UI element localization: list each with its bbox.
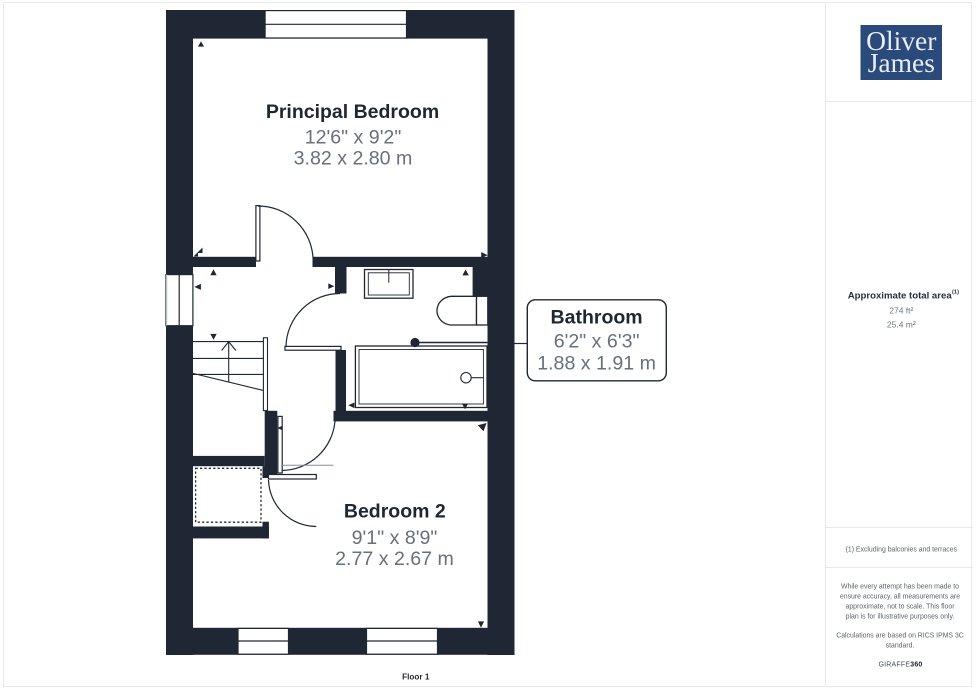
svg-text:approximate, not to scale. Thi: approximate, not to scale. This floor bbox=[845, 604, 955, 611]
svg-text:25.4 m²: 25.4 m² bbox=[887, 319, 916, 329]
svg-text:Calculations are based on RICS: Calculations are based on RICS IPMS 3C bbox=[836, 632, 964, 639]
svg-text:Principal Bedroom: Principal Bedroom bbox=[266, 101, 439, 123]
svg-text:plan is for illustrative purpo: plan is for illustrative purposes only. bbox=[846, 614, 955, 621]
svg-text:James: James bbox=[868, 47, 935, 78]
svg-text:(1): (1) bbox=[952, 290, 959, 296]
svg-text:Approximate total area: Approximate total area bbox=[848, 290, 953, 301]
svg-text:GIRAFFE360: GIRAFFE360 bbox=[878, 662, 922, 669]
svg-text:12'6" x 9'2": 12'6" x 9'2" bbox=[305, 126, 402, 148]
svg-text:(1) Excluding balconies and te: (1) Excluding balconies and terraces bbox=[846, 546, 958, 553]
svg-text:2.77 x 2.67 m: 2.77 x 2.67 m bbox=[335, 548, 454, 570]
svg-text:While every attempt has been m: While every attempt has been made to bbox=[841, 584, 959, 591]
svg-text:274 ft²: 274 ft² bbox=[889, 306, 913, 316]
svg-text:Bathroom: Bathroom bbox=[551, 306, 643, 328]
svg-text:ensure accuracy, all measureme: ensure accuracy, all measurements are bbox=[840, 594, 960, 601]
svg-text:standard.: standard. bbox=[886, 642, 915, 649]
svg-text:6'2" x 6'3": 6'2" x 6'3" bbox=[554, 330, 640, 352]
svg-text:9'1" x 8'9": 9'1" x 8'9" bbox=[352, 527, 438, 549]
svg-text:Floor 1: Floor 1 bbox=[402, 673, 430, 682]
svg-text:1.88 x 1.91 m: 1.88 x 1.91 m bbox=[537, 353, 656, 375]
svg-text:3.82 x 2.80 m: 3.82 x 2.80 m bbox=[294, 148, 413, 170]
svg-text:Bedroom 2: Bedroom 2 bbox=[344, 501, 446, 523]
